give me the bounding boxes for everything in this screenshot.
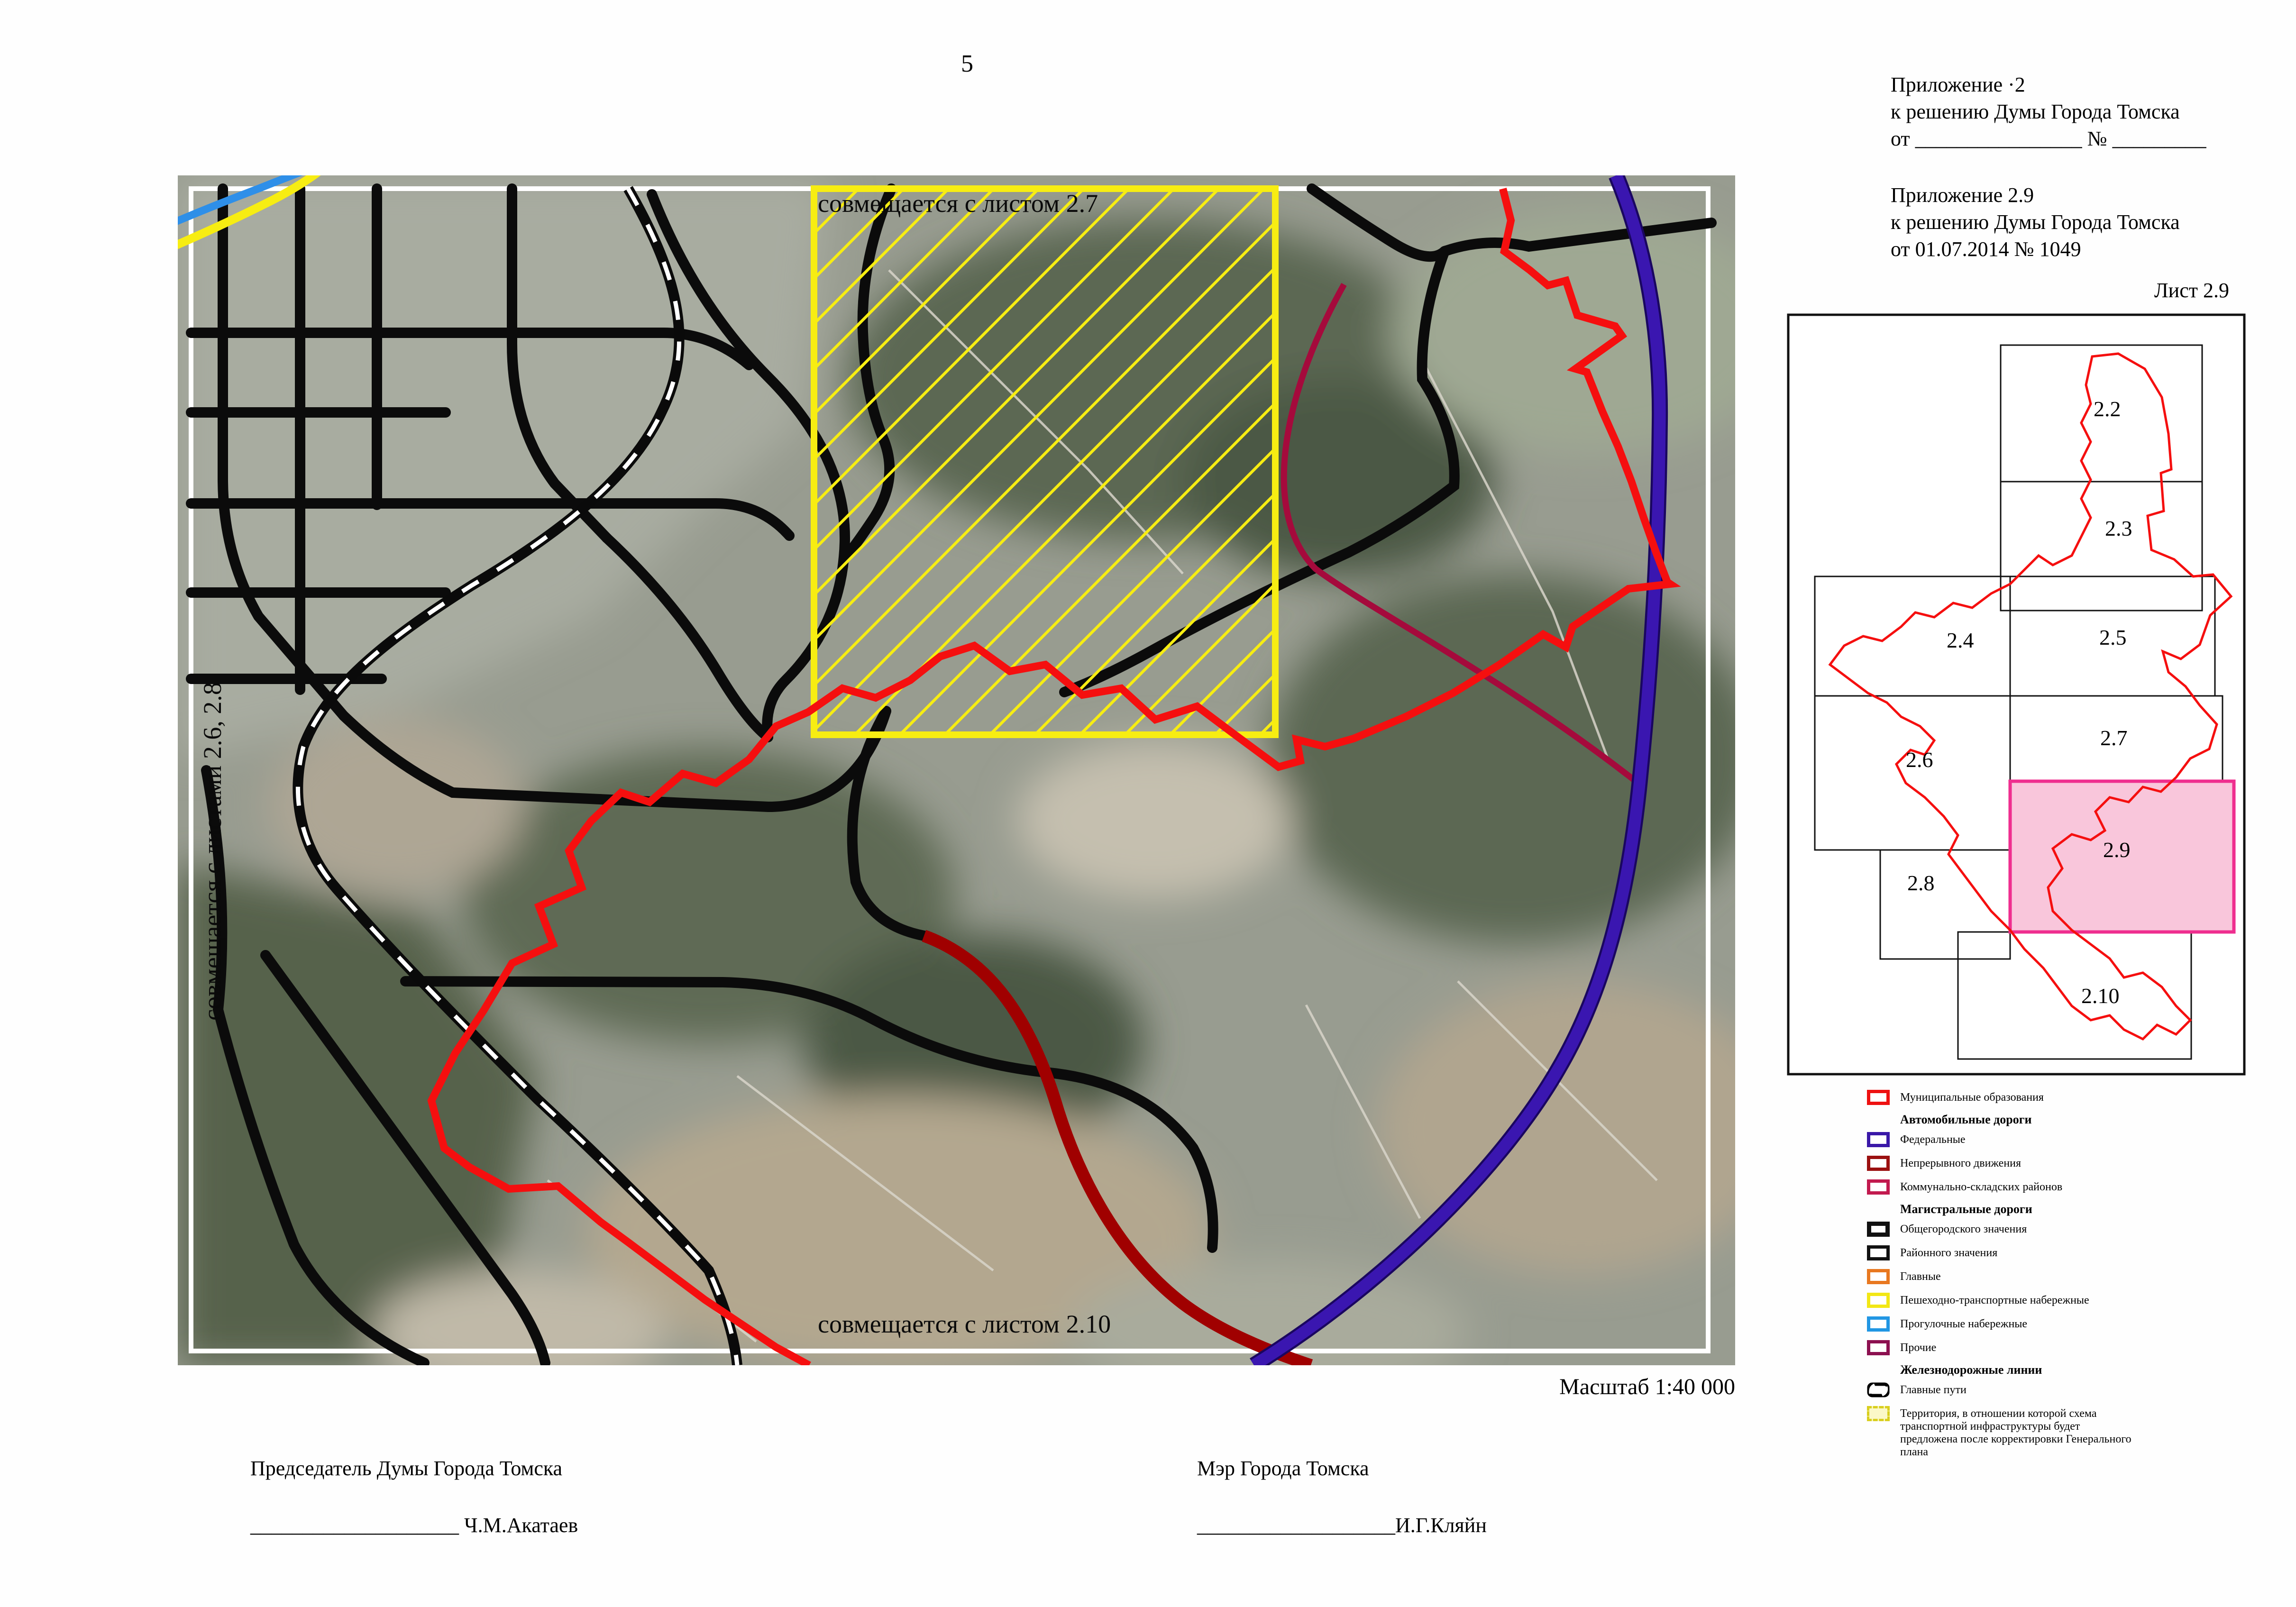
sheet-index-map: 2.22.32.42.52.62.72.82.92.10 [1786, 313, 2246, 1076]
index-sheet-label-2.5: 2.5 [2099, 625, 2127, 649]
legend: Муниципальные образованияАвтомобильные д… [1867, 1089, 2132, 1465]
map-label-bottom: совмещается с листом 2.10 [818, 1309, 1111, 1339]
index-sheet-label-2.10: 2.10 [2081, 984, 2120, 1008]
index-sheet-label-2.7: 2.7 [2100, 726, 2128, 750]
index-border [1788, 315, 2244, 1074]
legend-label: Коммунально-складских районов [1900, 1179, 2062, 1194]
legend-item: Районного значения [1867, 1245, 2132, 1262]
legend-label: Территория, в отношении которой схема тр… [1900, 1406, 2132, 1459]
legend-label: Районного значения [1900, 1245, 1997, 1260]
legend-item: Прогулочные набережные [1867, 1316, 2132, 1333]
map-svg [178, 175, 1735, 1365]
map-canvas: совмещается с листом 2.7 совмещается с л… [178, 175, 1735, 1365]
header-gap [1891, 152, 2241, 182]
legend-label: Прогулочные набережные [1900, 1316, 2027, 1331]
legend-swatch-icon [1867, 1132, 1890, 1147]
legend-swatch-icon [1867, 1382, 1890, 1397]
legend-item: Территория, в отношении которой схема тр… [1867, 1406, 2132, 1459]
signature-right-name: ___________________И.Г.Кляйн [1197, 1513, 1487, 1537]
legend-swatch-icon [1867, 1316, 1890, 1332]
appendix1-line1: Приложение ·2 [1891, 71, 2241, 98]
railway-swatch-icon [1867, 1382, 1890, 1397]
signature-right-title: Мэр Города Томска [1197, 1456, 1369, 1480]
legend-item: Общегородского значения [1867, 1221, 2132, 1238]
page-number: 5 [929, 50, 1005, 78]
signature-left-title: Председатель Думы Города Томска [250, 1456, 562, 1480]
legend-swatch-icon [1867, 1090, 1890, 1105]
legend-heading: Железнодорожные линии [1900, 1363, 2132, 1376]
legend-label: Главные пути [1900, 1382, 1967, 1397]
legend-swatch-icon [1867, 1340, 1890, 1355]
legend-swatch-icon [1867, 1222, 1890, 1237]
document-page: 5 Приложение ·2 к решению Думы Города То… [0, 0, 2296, 1607]
legend-item: Коммунально-складских районов [1867, 1179, 2132, 1196]
legend-item: Муниципальные образования [1867, 1089, 2132, 1106]
appendix1-line3: от ________________ № _________ [1891, 125, 2241, 152]
legend-swatch-icon [1867, 1269, 1890, 1284]
header-block: Приложение ·2 к решению Думы Города Томс… [1891, 71, 2241, 304]
appendix1-line2: к решению Думы Города Томска [1891, 98, 2241, 125]
appendix2-line2: к решению Думы Города Томска [1891, 209, 2241, 236]
legend-item: Главные [1867, 1269, 2132, 1286]
legend-item: Прочие [1867, 1340, 2132, 1357]
legend-item: Пешеходно-транспортные набережные [1867, 1292, 2132, 1309]
legend-label: Муниципальные образования [1900, 1089, 2044, 1104]
legend-label: Общегородского значения [1900, 1221, 2027, 1236]
legend-swatch-icon [1867, 1179, 1890, 1195]
sheet-label: Лист 2.9 [1891, 277, 2241, 304]
legend-swatch-icon [1867, 1156, 1890, 1171]
legend-label: Прочие [1900, 1340, 1936, 1354]
legend-label: Непрерывного движения [1900, 1155, 2021, 1170]
signature-left-name: ____________________ Ч.М.Акатаев [250, 1513, 578, 1537]
legend-item: Непрерывного движения [1867, 1155, 2132, 1172]
appendix2-line1: Приложение 2.9 [1891, 182, 2241, 209]
legend-item: Главные пути [1867, 1382, 2132, 1399]
index-svg: 2.22.32.42.52.62.72.82.92.10 [1786, 313, 2246, 1076]
index-sheet-label-2.9: 2.9 [2103, 838, 2131, 862]
legend-swatch-icon [1867, 1245, 1890, 1260]
legend-label: Федеральные [1900, 1132, 1966, 1146]
legend-heading: Магистральные дороги [1900, 1203, 2132, 1215]
legend-label: Пешеходно-транспортные набережные [1900, 1292, 2089, 1307]
index-sheet-label-2.3: 2.3 [2105, 516, 2132, 540]
map-label-top: совмещается с листом 2.7 [818, 189, 1098, 218]
index-sheet-label-2.4: 2.4 [1947, 628, 1974, 652]
index-sheet-label-2.8: 2.8 [1907, 871, 1935, 895]
index-sheet-label-2.6: 2.6 [1906, 748, 1933, 772]
legend-label: Главные [1900, 1269, 1941, 1283]
legend-item: Федеральные [1867, 1132, 2132, 1149]
map-label-left: совмещается с листами 2.6, 2.8 [198, 612, 227, 1091]
appendix2-line3: от 01.07.2014 № 1049 [1891, 236, 2241, 263]
legend-heading: Автомобильные дороги [1900, 1113, 2132, 1126]
scale-label: Масштаб 1:40 000 [1166, 1374, 1735, 1400]
legend-swatch-icon [1867, 1406, 1890, 1421]
legend-swatch-icon [1867, 1293, 1890, 1308]
index-sheet-label-2.2: 2.2 [2094, 397, 2121, 421]
